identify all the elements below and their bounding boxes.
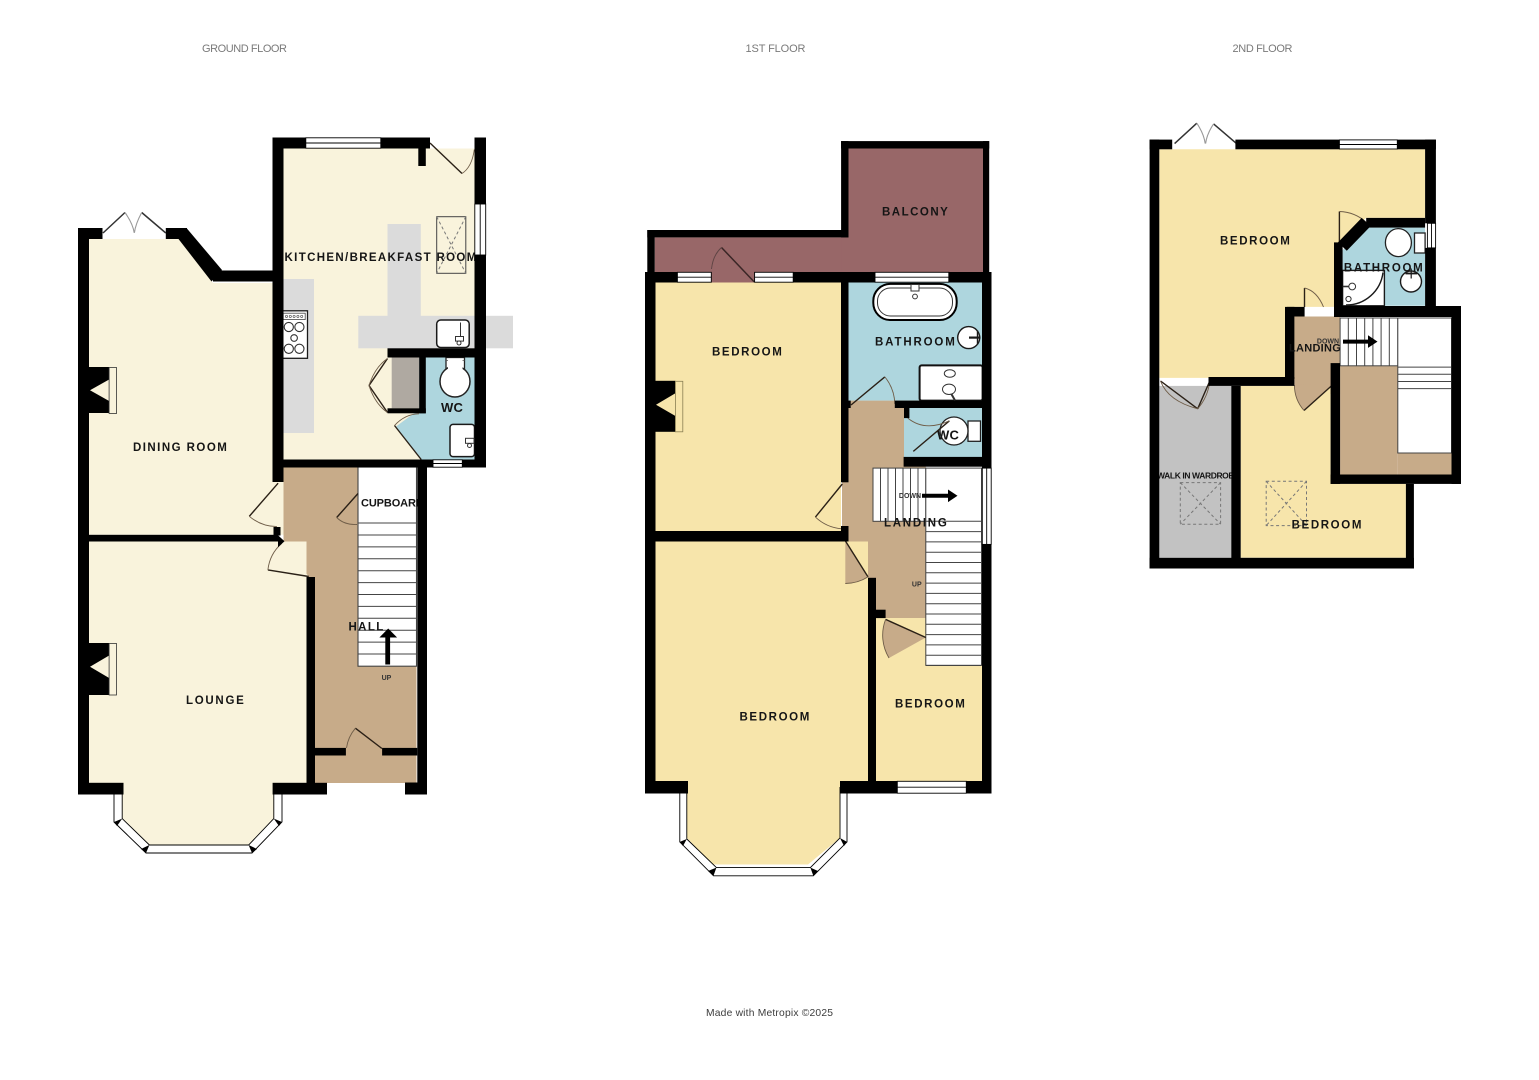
svg-text:Made with Metropix ©2025: Made with Metropix ©2025 [706,1008,833,1019]
svg-text:LOUNGE: LOUNGE [186,695,244,707]
svg-text:BEDROOM: BEDROOM [895,699,965,711]
svg-text:WALK IN WARDROBE: WALK IN WARDROBE [1157,471,1240,481]
svg-text:DOWN: DOWN [1317,339,1339,346]
svg-text:UP: UP [382,675,392,682]
svg-text:WC: WC [937,428,959,443]
svg-text:DINING ROOM: DINING ROOM [133,442,227,454]
svg-text:BEDROOM: BEDROOM [712,347,782,359]
svg-text:WC: WC [441,400,463,415]
svg-text:LANDING: LANDING [884,518,947,530]
svg-text:2ND FLOOR: 2ND FLOOR [1233,43,1293,55]
svg-text:BATHROOM: BATHROOM [1344,263,1423,275]
svg-text:DOWN: DOWN [899,493,921,500]
svg-text:BEDROOM: BEDROOM [740,712,810,724]
svg-text:GROUND FLOOR: GROUND FLOOR [202,43,287,55]
svg-text:CUPBOARD: CUPBOARD [361,498,424,510]
svg-text:1ST FLOOR: 1ST FLOOR [746,43,806,55]
svg-text:BATHROOM: BATHROOM [875,337,955,349]
svg-text:BALCONY: BALCONY [882,207,948,219]
svg-text:UP: UP [912,582,922,589]
svg-text:KITCHEN/BREAKFAST ROOM: KITCHEN/BREAKFAST ROOM [285,252,477,264]
svg-text:BEDROOM: BEDROOM [1292,520,1362,532]
svg-text:BEDROOM: BEDROOM [1220,236,1290,248]
svg-text:HALL: HALL [349,622,384,634]
